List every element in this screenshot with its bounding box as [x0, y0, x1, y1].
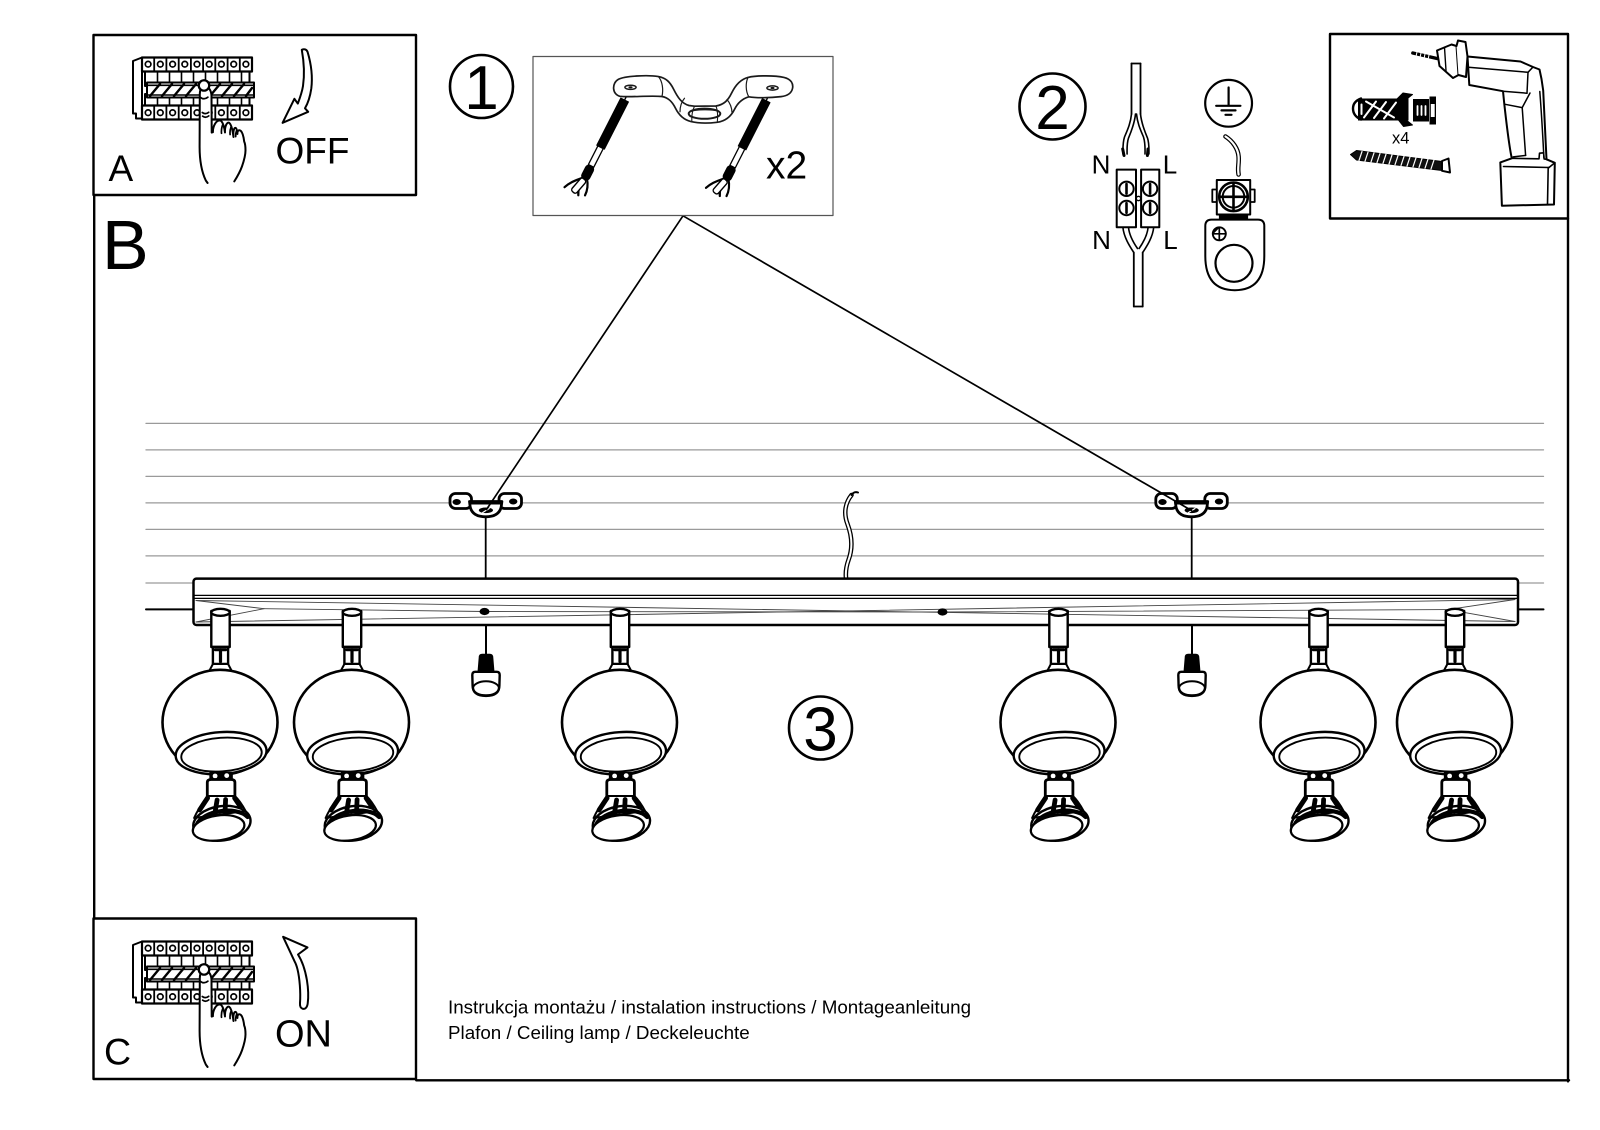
svg-text:OFF: OFF	[276, 131, 350, 172]
svg-text:N: N	[1092, 149, 1111, 179]
svg-text:1: 1	[464, 54, 498, 123]
svg-text:x2: x2	[766, 145, 807, 188]
svg-text:2: 2	[1035, 74, 1069, 143]
svg-text:ON: ON	[275, 1014, 332, 1056]
svg-text:C: C	[104, 1031, 131, 1073]
svg-text:B: B	[102, 206, 149, 284]
svg-text:3: 3	[803, 695, 837, 764]
svg-text:L: L	[1163, 149, 1177, 179]
svg-text:x4: x4	[1392, 130, 1409, 148]
svg-text:L: L	[1163, 225, 1177, 255]
svg-text:Instrukcja montażu / instalati: Instrukcja montażu / instalation instruc…	[448, 997, 971, 1018]
svg-text:N: N	[1092, 225, 1111, 255]
svg-text:Plafon / Ceiling lamp / Deckel: Plafon / Ceiling lamp / Deckeleuchte	[448, 1022, 750, 1043]
svg-text:A: A	[109, 148, 134, 189]
